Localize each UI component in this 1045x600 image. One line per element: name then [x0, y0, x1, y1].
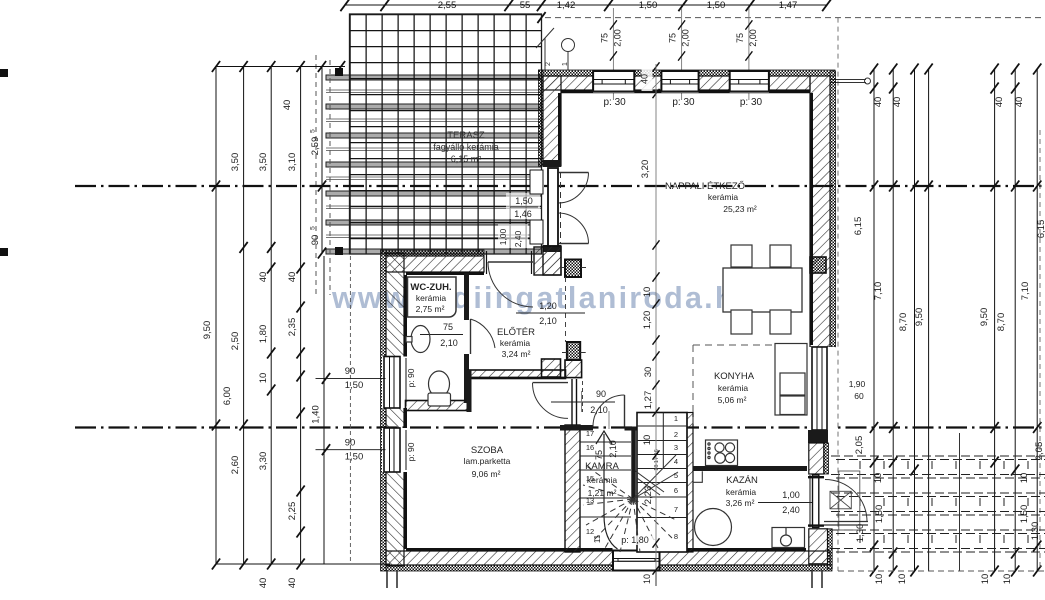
svg-text:3,26 m²: 3,26 m²	[726, 498, 755, 508]
svg-text:3,24 m²: 3,24 m²	[502, 349, 531, 359]
svg-text:kerámia: kerámia	[708, 192, 739, 202]
svg-text:1,30: 1,30	[1030, 522, 1041, 541]
svg-text:2,59: 2,59	[310, 137, 321, 156]
svg-text:kerámia: kerámia	[416, 293, 447, 303]
svg-text:75: 75	[599, 33, 609, 43]
svg-text:40: 40	[640, 74, 650, 84]
svg-text:10: 10	[897, 574, 908, 585]
svg-text:1,90: 1,90	[849, 379, 866, 389]
svg-text:90: 90	[596, 389, 606, 399]
svg-text:6,15: 6,15	[1036, 220, 1045, 239]
svg-text:60: 60	[854, 391, 864, 401]
svg-text:1,40: 1,40	[311, 405, 322, 424]
svg-text:2,23: 2,23	[643, 486, 654, 505]
svg-text:p: 1,80: p: 1,80	[621, 535, 649, 545]
svg-text:75: 75	[668, 33, 678, 43]
svg-text:40: 40	[258, 578, 269, 589]
svg-text:2,55: 2,55	[438, 0, 457, 11]
svg-text:kerámia: kerámia	[718, 383, 749, 393]
svg-text:kerámia: kerámia	[500, 338, 531, 348]
svg-text:8,70: 8,70	[996, 313, 1007, 332]
svg-text:10: 10	[642, 574, 652, 584]
svg-text:3,10: 3,10	[287, 153, 298, 172]
svg-text:30: 30	[643, 367, 654, 378]
svg-text:1,27: 1,27	[643, 391, 654, 410]
svg-text:p: 30: p: 30	[603, 97, 626, 108]
svg-text:25,23 m²: 25,23 m²	[723, 204, 757, 214]
svg-text:2: 2	[545, 62, 552, 66]
svg-text:3,50: 3,50	[230, 153, 241, 172]
svg-text:75: 75	[735, 33, 745, 43]
svg-text:NAPPALI ÉTKEZŐ: NAPPALI ÉTKEZŐ	[665, 181, 745, 192]
svg-text:6,15: 6,15	[853, 217, 864, 236]
svg-text:2,75 m²: 2,75 m²	[416, 304, 445, 314]
svg-text:KAZÁN: KAZÁN	[726, 475, 758, 486]
svg-text:40: 40	[287, 272, 298, 283]
svg-text:1,50: 1,50	[345, 452, 364, 463]
svg-text:1,50: 1,50	[345, 380, 364, 391]
svg-text:WC-ZUH.: WC-ZUH.	[410, 282, 451, 293]
svg-text:1,50: 1,50	[874, 505, 885, 524]
svg-text:1,00: 1,00	[782, 490, 800, 500]
svg-text:5: 5	[310, 129, 317, 133]
svg-text:2,05: 2,05	[854, 436, 865, 455]
svg-text:1,21 m²: 1,21 m²	[588, 488, 617, 498]
svg-text:2,10: 2,10	[539, 316, 557, 326]
svg-text:2,05: 2,05	[1034, 442, 1045, 461]
svg-text:1,50: 1,50	[639, 0, 658, 11]
svg-text:40: 40	[892, 97, 903, 108]
svg-text:40: 40	[994, 97, 1005, 108]
svg-text:1,20: 1,20	[642, 311, 653, 330]
svg-text:3,30: 3,30	[258, 452, 269, 471]
svg-text:1,42: 1,42	[557, 0, 576, 11]
svg-text:1,00: 1,00	[498, 228, 508, 245]
svg-text:16: 16	[586, 443, 594, 452]
svg-text:40: 40	[1014, 97, 1025, 108]
svg-text:2,10: 2,10	[440, 338, 458, 348]
svg-text:lam.parketta: lam.parketta	[464, 456, 511, 466]
svg-text:1: 1	[674, 414, 678, 423]
svg-text:p: 90: p: 90	[406, 442, 416, 461]
svg-text:2,00: 2,00	[612, 29, 622, 47]
svg-text:p: 30: p: 30	[740, 97, 763, 108]
svg-text:75: 75	[443, 322, 453, 332]
svg-text:7,10: 7,10	[1020, 282, 1031, 301]
svg-text:8: 8	[674, 532, 678, 541]
svg-text:1,47: 1,47	[779, 0, 798, 11]
svg-text:2,40: 2,40	[513, 230, 523, 247]
svg-text:2: 2	[674, 430, 678, 439]
svg-text:2,60: 2,60	[230, 456, 241, 475]
svg-text:5: 5	[310, 226, 317, 230]
svg-text:17: 17	[586, 429, 594, 438]
svg-text:10: 10	[642, 435, 653, 446]
svg-text:10: 10	[874, 574, 885, 585]
svg-text:75: 75	[594, 450, 604, 460]
svg-text:40: 40	[258, 272, 269, 283]
svg-text:2,40: 2,40	[782, 505, 800, 515]
svg-text:ELŐTÉR: ELŐTÉR	[497, 327, 535, 338]
svg-text:3,50: 3,50	[258, 153, 269, 172]
svg-text:40: 40	[873, 97, 884, 108]
svg-text:10: 10	[642, 287, 653, 298]
svg-text:10: 10	[980, 574, 991, 585]
svg-text:10: 10	[1002, 574, 1013, 585]
svg-text:p: 30: p: 30	[672, 97, 695, 108]
svg-text:SZOBA: SZOBA	[471, 445, 504, 456]
svg-text:9,50: 9,50	[979, 308, 990, 327]
svg-text:2,00: 2,00	[748, 29, 758, 47]
svg-text:90: 90	[310, 235, 321, 246]
svg-text:9,06 m²: 9,06 m²	[472, 469, 501, 479]
svg-text:1,50: 1,50	[1019, 505, 1030, 524]
svg-text:3,20: 3,20	[640, 160, 651, 179]
svg-text:2,00: 2,00	[681, 29, 691, 47]
svg-text:KAMRA: KAMRA	[585, 461, 619, 472]
svg-text:p: 90: p: 90	[406, 368, 416, 387]
svg-text:55: 55	[520, 0, 531, 11]
svg-text:6,00: 6,00	[222, 387, 233, 406]
svg-text:kerámia: kerámia	[726, 487, 757, 497]
svg-text:KONYHA: KONYHA	[714, 371, 755, 382]
svg-text:1,50: 1,50	[707, 0, 726, 11]
svg-text:12: 12	[586, 527, 594, 536]
svg-text:90: 90	[345, 438, 356, 449]
svg-text:4: 4	[674, 457, 678, 466]
svg-text:2,35: 2,35	[287, 318, 298, 337]
svg-text:TERASZ: TERASZ	[447, 130, 485, 141]
svg-text:1: 1	[562, 62, 569, 66]
svg-text:1,46: 1,46	[514, 209, 532, 219]
svg-text:3: 3	[674, 443, 678, 452]
svg-text:fagyálló kerámia: fagyálló kerámia	[433, 142, 499, 152]
svg-text:40: 40	[282, 100, 293, 111]
svg-text:2,50: 2,50	[230, 332, 241, 351]
svg-text:7,10: 7,10	[873, 282, 884, 301]
svg-text:1,80: 1,80	[258, 325, 269, 344]
svg-text:2,10: 2,10	[590, 405, 608, 415]
svg-text:kerámia: kerámia	[587, 475, 618, 485]
svg-text:10: 10	[258, 373, 269, 384]
svg-text:2,25: 2,25	[287, 502, 298, 521]
svg-text:6: 6	[674, 486, 678, 495]
svg-text:9,50: 9,50	[914, 308, 925, 327]
svg-text:6,15 m²: 6,15 m²	[451, 154, 482, 164]
svg-text:2,10: 2,10	[608, 440, 618, 458]
svg-text:5,06 m²: 5,06 m²	[718, 395, 747, 405]
svg-text:40: 40	[287, 578, 298, 589]
svg-text:90: 90	[345, 366, 356, 377]
svg-text:8,70: 8,70	[898, 313, 909, 332]
svg-text:1,50: 1,50	[515, 196, 533, 206]
svg-text:9,50: 9,50	[202, 321, 213, 340]
svg-text:7: 7	[674, 505, 678, 514]
svg-text:1,20: 1,20	[539, 301, 557, 311]
